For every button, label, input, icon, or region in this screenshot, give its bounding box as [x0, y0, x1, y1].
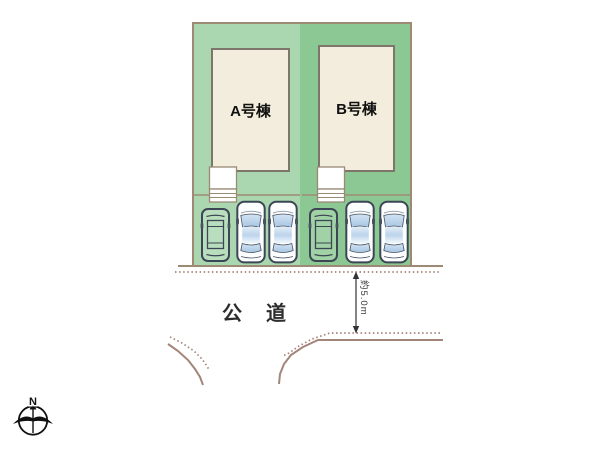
car-wagon-outline-icon	[309, 209, 339, 261]
car-sedan-icon	[345, 202, 375, 263]
car-sedan-icon	[268, 202, 298, 263]
road-dotted-line-left	[170, 337, 209, 370]
site-plan-canvas: A号棟 B号棟	[0, 0, 600, 450]
compass-north-label: N	[29, 396, 37, 408]
site-plan-drawing: N	[0, 0, 600, 450]
entrance-porch-b	[318, 167, 345, 202]
road-curb-line-left	[168, 344, 203, 385]
car-sedan-icon	[236, 202, 266, 263]
car-sedan-icon	[379, 202, 409, 263]
road-curb-line-right	[279, 340, 443, 384]
north-compass-icon: N	[13, 396, 53, 435]
entrance-porch-a	[210, 167, 237, 202]
road-label: 公 道	[222, 297, 288, 326]
car-wagon-outline-icon	[201, 209, 231, 261]
road-width-dimension-label: 約5.0m	[358, 280, 372, 316]
